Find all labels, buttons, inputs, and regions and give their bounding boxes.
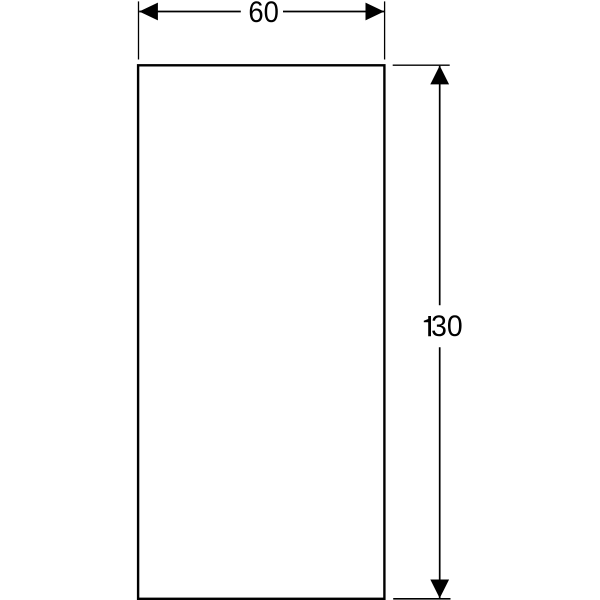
svg-text:60: 60 <box>248 0 279 29</box>
svg-text:30: 30 <box>431 310 463 343</box>
